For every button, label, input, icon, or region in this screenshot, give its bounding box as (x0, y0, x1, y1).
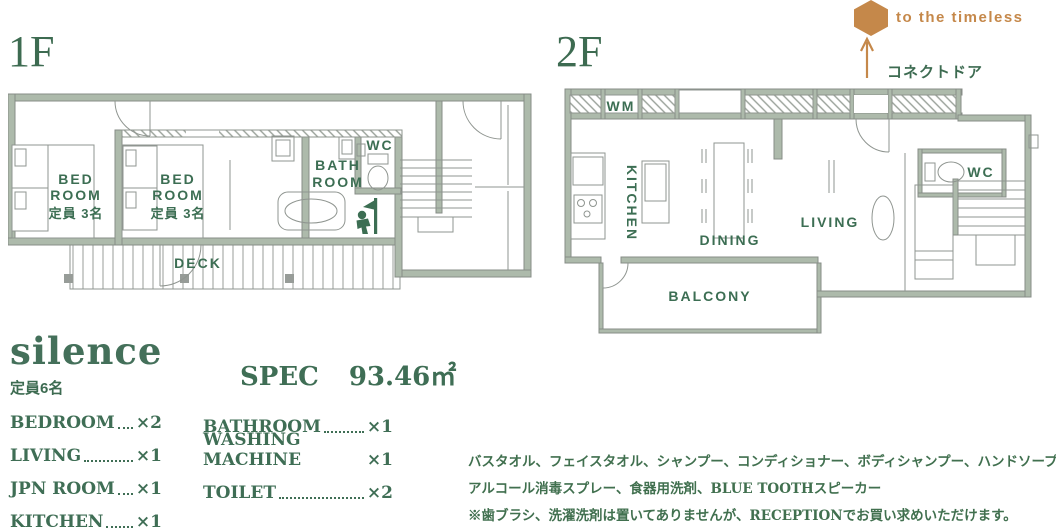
bathroom-label: BATH (315, 157, 361, 173)
bedroom2-capacity: 定員 3名 (150, 206, 206, 221)
floor1-title: 1F (8, 30, 54, 74)
kitchen-label: KITCHEN (624, 165, 640, 241)
spec-row: TOILET×2 (203, 483, 393, 503)
stove-icon (574, 195, 602, 223)
floorplan-page: 1F 2F (0, 0, 1056, 528)
spec-area: 93.46㎡ (349, 364, 456, 390)
connect-door-arc (856, 119, 889, 152)
balcony-door-arc (603, 263, 628, 288)
timeless-label: to the timeless (896, 9, 1024, 26)
spec-item-count: ×1 (136, 512, 162, 528)
bedroom1-label: BED (58, 171, 94, 187)
floor2-plan: WM KITCHEN DINING LIVING WC BALCONY (563, 83, 1041, 343)
wc-label: WC (967, 164, 994, 180)
dining-table-icon (702, 143, 752, 238)
deck-post (285, 274, 294, 283)
hatched-inner-wall (122, 130, 402, 137)
up-arrow-icon (858, 34, 876, 80)
spec-item-count: ×2 (367, 483, 393, 503)
spec-list-col1: BEDROOM×2 LIVING×1 JPN ROOM×1 KITCHEN×1 (10, 413, 162, 528)
living-label: LIVING (801, 214, 860, 230)
amenities-note: バスタオル、フェイスタオル、シャンプー、コンディショナー、ボディシャンプー、ハン… (468, 449, 1056, 528)
shower-icon (357, 198, 378, 234)
spec-item-label: WASHING MACHINE (203, 430, 361, 470)
floor2-title: 2F (556, 30, 602, 74)
amenities-line: アルコール消毒スプレー、食器用洗剤、BLUE TOOTHスピーカー (468, 476, 1056, 503)
spec-item-count: ×1 (367, 450, 393, 470)
spec-item-count: ×1 (136, 479, 162, 499)
spec-item-label: LIVING (10, 446, 81, 466)
floor1-plan: BED ROOM 定員 3名 BED ROOM 定員 3名 BATH ROOM … (8, 86, 532, 312)
connect-door-label: コネクトドア (887, 61, 983, 82)
amenities-line: バスタオル、フェイスタオル、シャンプー、コンディショナー、ボディシャンプー、ハン… (468, 449, 1056, 476)
spec-item-label: TOILET (203, 483, 276, 503)
connect-door-gap (854, 95, 888, 113)
spec-row: LIVING×1 (10, 446, 162, 466)
balcony-label: BALCONY (668, 288, 751, 304)
spec-row: WASHING MACHINE×1 (203, 450, 393, 470)
bedroom2-label: ROOM (152, 187, 204, 203)
spec-item-count: ×1 (136, 446, 162, 466)
spec-heading: SPEC 93.46㎡ (240, 364, 456, 390)
wc-label: WC (366, 137, 393, 153)
spec-item-label: JPN ROOM (10, 479, 115, 499)
bedroom1-label: ROOM (50, 187, 102, 203)
spec-item-label: KITCHEN (10, 512, 103, 528)
bathtub-icon (278, 192, 345, 230)
bedroom1-capacity: 定員 3名 (48, 206, 104, 221)
bunk-bed-icon (12, 145, 48, 231)
plan-name: silence (10, 333, 162, 370)
kitchen-island (642, 161, 669, 223)
spec-row: JPN ROOM×1 (10, 479, 162, 499)
spec-list-col2: BATHROOM×1 WASHING MACHINE×1 TOILET×2 (203, 417, 393, 516)
amenities-line: ※歯ブラシ、洗濯洗剤は置いてありませんが、RECEPTIONでお買い求めいただけ… (468, 503, 1056, 528)
kitchen-counter (571, 153, 605, 239)
spec-row: KITCHEN×1 (10, 512, 162, 528)
bedroom2-label: BED (160, 171, 196, 187)
spec-row: BEDROOM×2 (10, 413, 162, 433)
deck-label: DECK (174, 255, 222, 271)
spec-label: SPEC (240, 364, 319, 390)
spec-item-count: ×1 (367, 417, 393, 437)
spec-item-count: ×2 (136, 413, 162, 433)
timeless-hexagon-icon (854, 0, 888, 36)
window-bay (679, 90, 741, 113)
total-capacity: 定員6名 (10, 377, 63, 398)
spec-item-label: BEDROOM (10, 413, 115, 433)
bathroom-label: ROOM (312, 174, 364, 190)
deck-area (64, 245, 400, 289)
wm-label: WM (607, 98, 636, 114)
deck-post (64, 274, 73, 283)
dining-label: DINING (700, 232, 761, 248)
